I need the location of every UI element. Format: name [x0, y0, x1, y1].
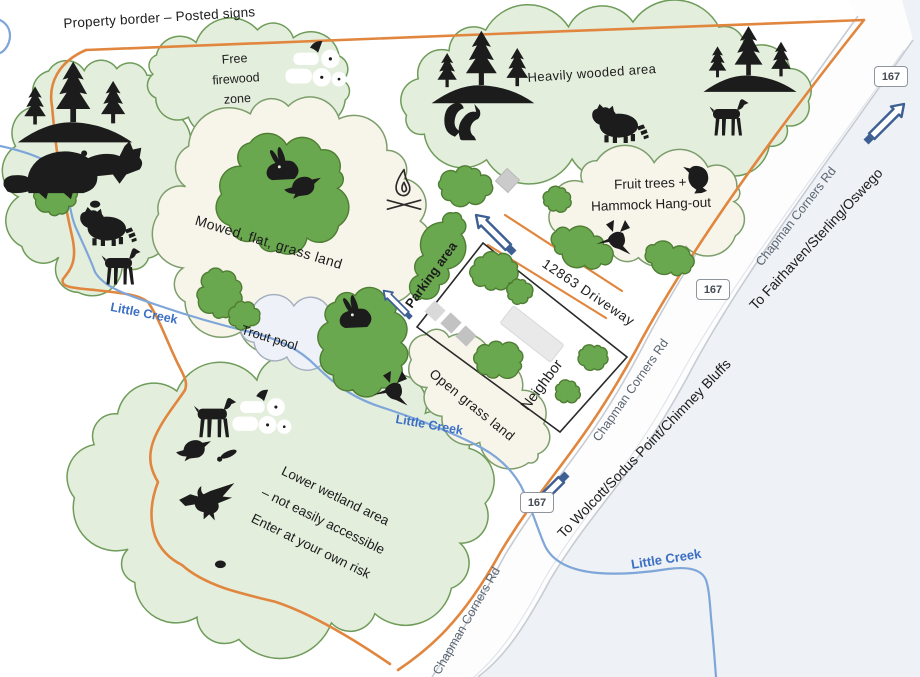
route-167-badge: 167 [696, 279, 730, 300]
bush [474, 341, 523, 378]
route-167-badge: 167 [520, 492, 554, 513]
bush [555, 380, 580, 403]
route-number: 167 [882, 71, 900, 83]
map-canvas [0, 0, 920, 677]
parking-spot [424, 300, 445, 321]
bush [439, 166, 493, 207]
route-number: 167 [528, 497, 546, 509]
property-map: Property border – Posted signs Free fire… [0, 0, 920, 677]
bush [578, 345, 608, 371]
bush [507, 279, 533, 304]
route-167-badge: 167 [874, 66, 908, 87]
little-creek-corner [0, 20, 10, 53]
fruit-hammock-label: Fruit trees + Hammock Hang-out [560, 170, 741, 218]
route-number: 167 [704, 284, 722, 296]
free-firewood-label: Free firewood zone [190, 46, 282, 112]
